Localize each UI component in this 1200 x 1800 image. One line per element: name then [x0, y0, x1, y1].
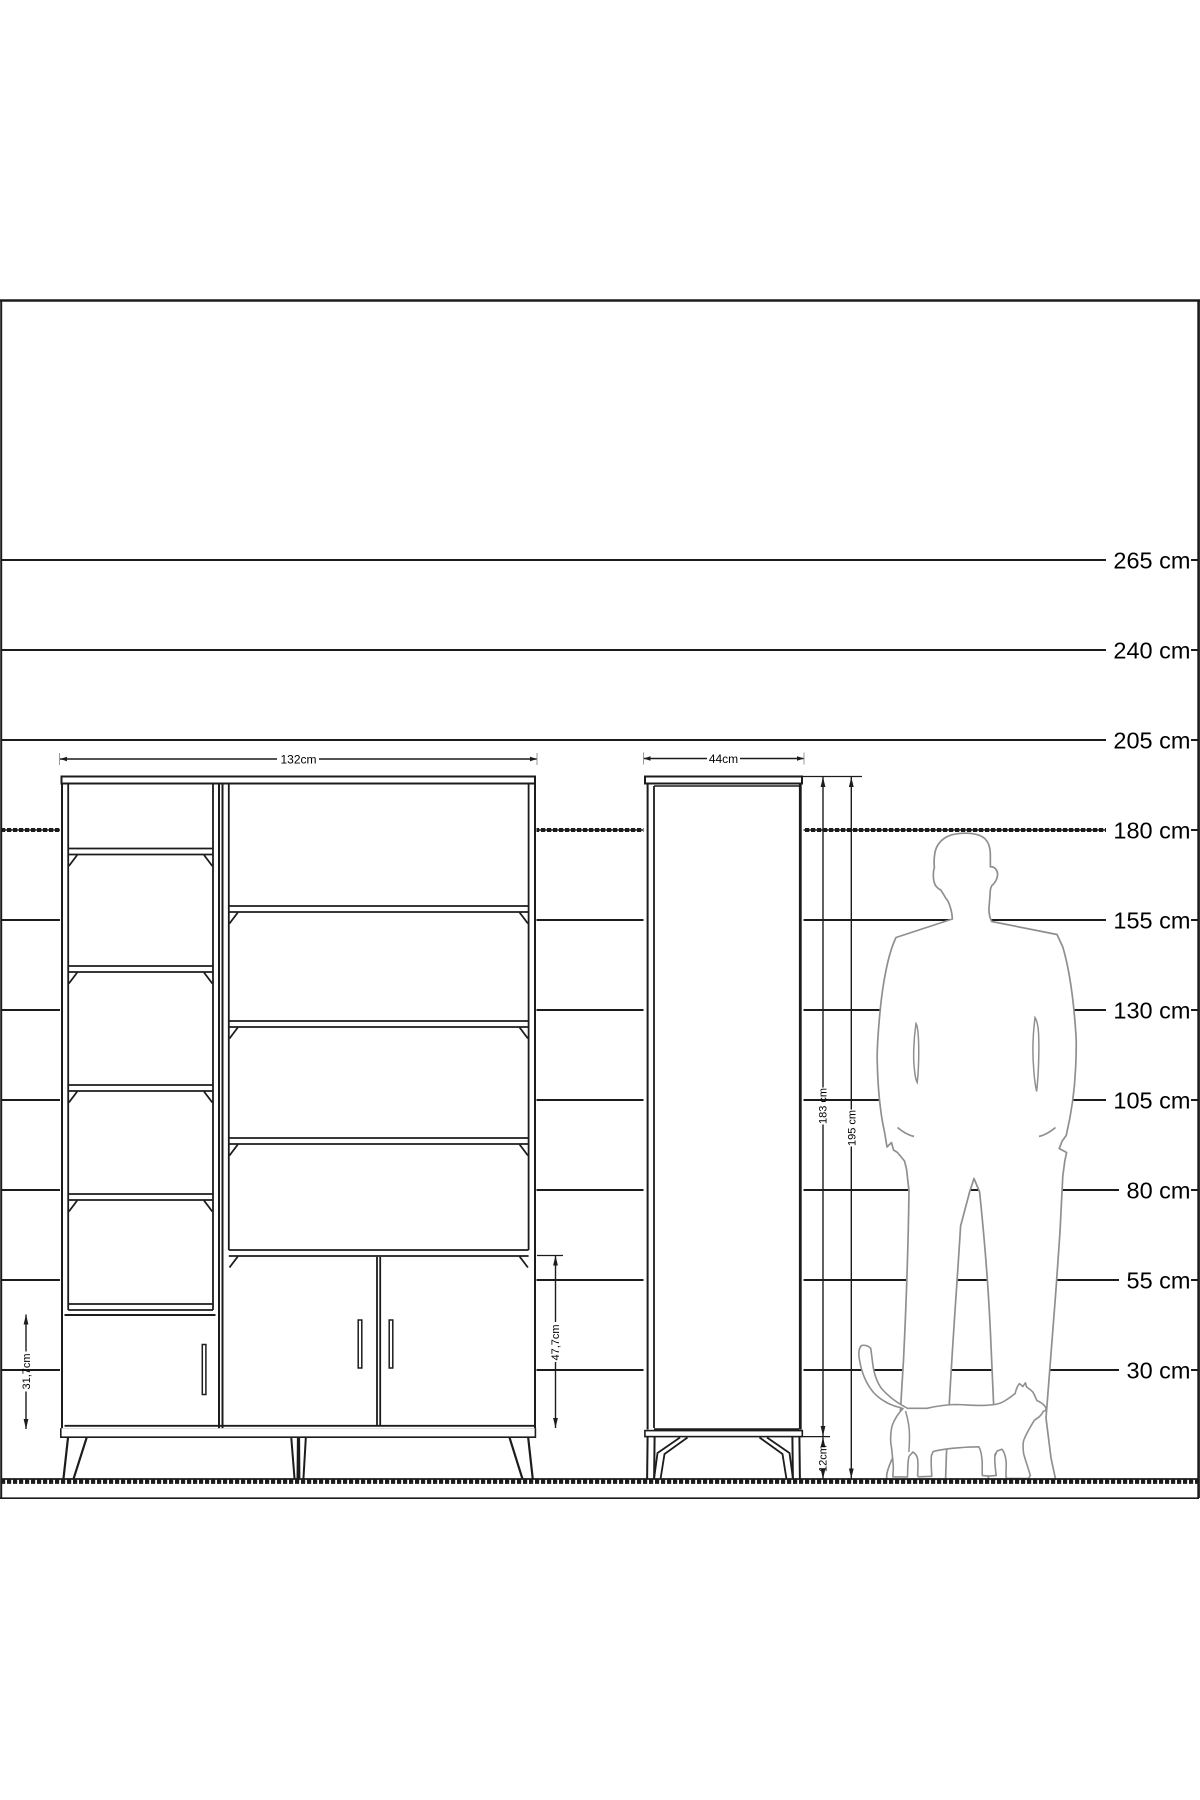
- svg-text:132cm: 132cm: [280, 753, 316, 767]
- svg-text:12cm: 12cm: [818, 1445, 830, 1472]
- svg-text:240 cm: 240 cm: [1113, 638, 1190, 664]
- svg-text:55 cm: 55 cm: [1127, 1268, 1191, 1294]
- svg-text:80 cm: 80 cm: [1127, 1178, 1191, 1204]
- svg-text:31,7cm: 31,7cm: [21, 1353, 33, 1389]
- svg-text:180 cm: 180 cm: [1113, 818, 1190, 844]
- svg-text:155 cm: 155 cm: [1113, 908, 1190, 934]
- svg-text:105 cm: 105 cm: [1113, 1088, 1190, 1114]
- svg-text:195 cm: 195 cm: [846, 1110, 858, 1146]
- svg-text:130 cm: 130 cm: [1113, 998, 1190, 1024]
- svg-text:265 cm: 265 cm: [1113, 548, 1190, 574]
- svg-text:30 cm: 30 cm: [1127, 1358, 1191, 1384]
- svg-text:183 cm: 183 cm: [818, 1088, 830, 1124]
- svg-text:47,7cm: 47,7cm: [550, 1324, 562, 1360]
- svg-text:205 cm: 205 cm: [1113, 728, 1190, 754]
- svg-text:44cm: 44cm: [709, 752, 738, 766]
